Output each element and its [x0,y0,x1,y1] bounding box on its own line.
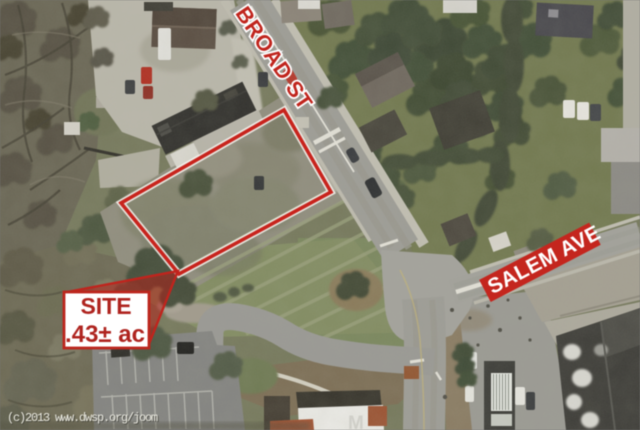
svg-text:SITE: SITE [80,293,131,319]
svg-text:.43± ac: .43± ac [65,321,145,348]
svg-text:(c)2013 www.dwsp.org/joom: (c)2013 www.dwsp.org/joom [7,411,158,425]
